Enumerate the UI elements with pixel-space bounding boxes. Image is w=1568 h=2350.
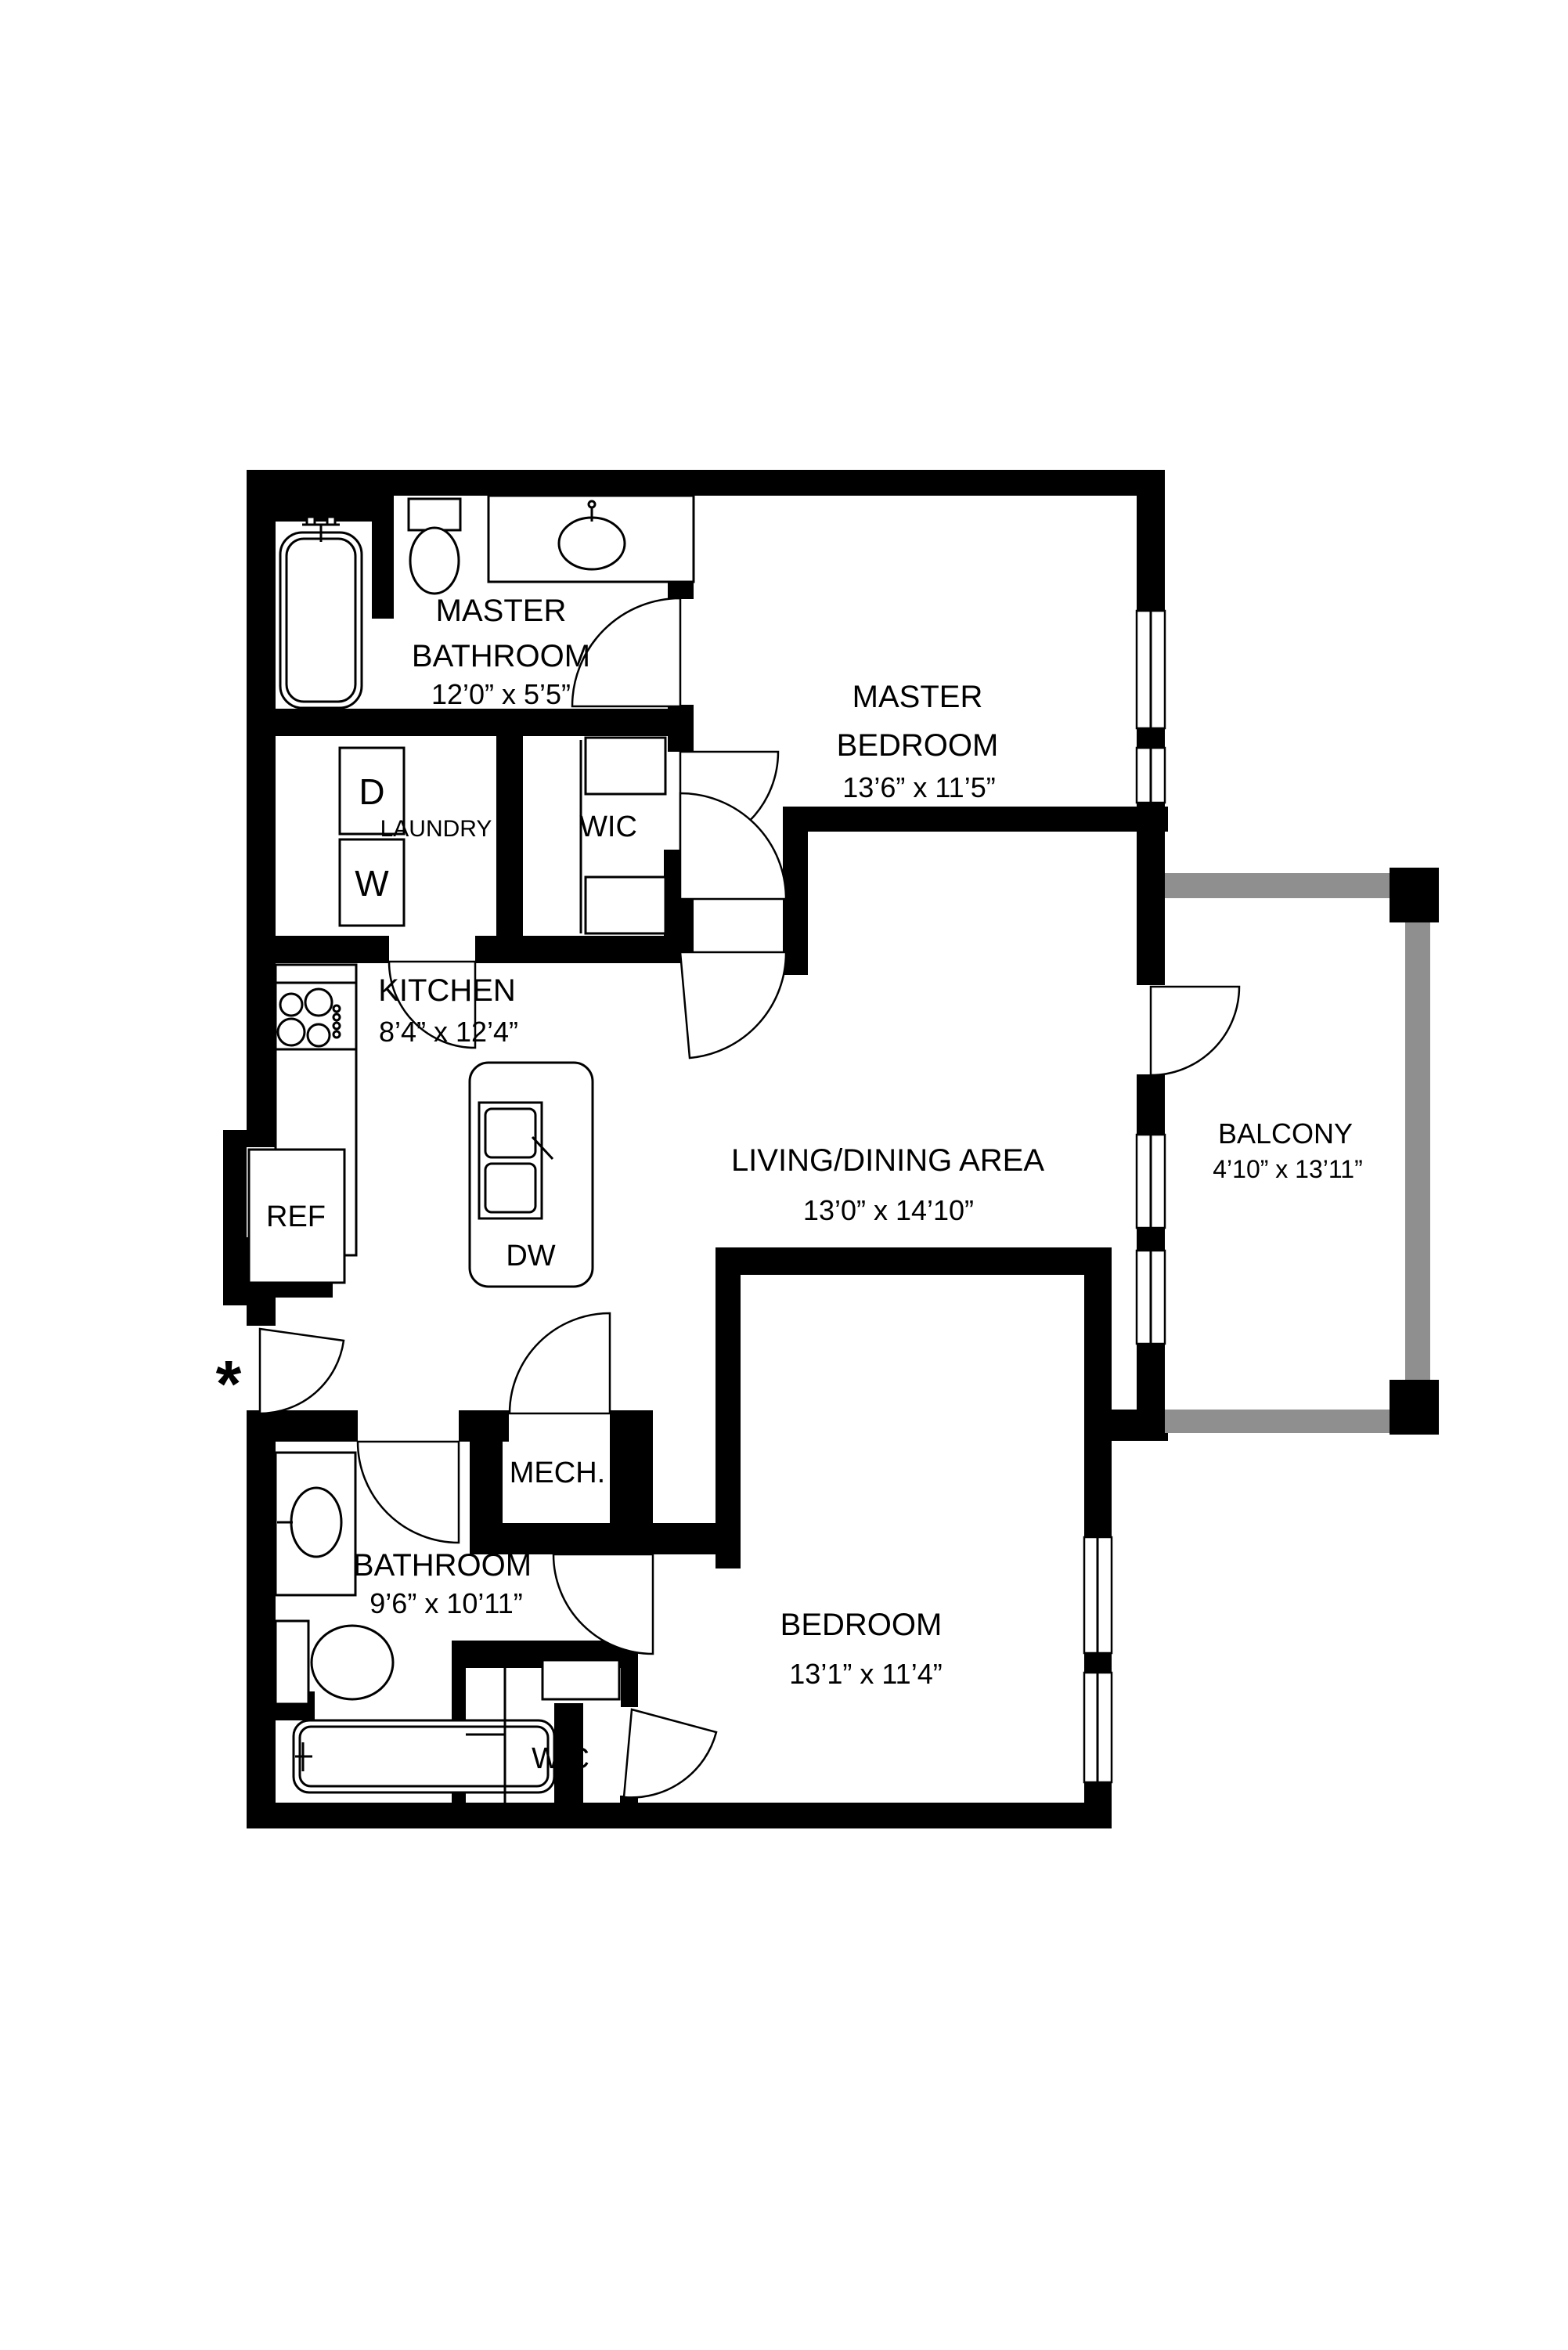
stove-burner-icon	[308, 1024, 330, 1046]
wall-bedroom-right-c	[1084, 1782, 1112, 1828]
closet2-shelf	[542, 1660, 619, 1699]
sink-icon	[559, 518, 625, 569]
closet-shelf-bottom	[586, 877, 665, 933]
wall-masterbed-bottom	[808, 807, 1168, 832]
wall-balcony-connector	[1112, 1410, 1168, 1441]
master-bedroom-label-line1: MASTER	[852, 680, 983, 714]
wall-masterbath-bottom	[247, 709, 694, 736]
balcony-rails	[1165, 868, 1439, 1435]
wall-left-lower	[247, 1412, 276, 1828]
door-master-bedroom	[680, 793, 786, 899]
mech-label: MECH.	[510, 1457, 605, 1489]
wall-wic-bottom	[475, 936, 694, 963]
wall-bedroom-right-a	[1084, 1247, 1112, 1537]
bathroom-dims: 9’6” x 10’11”	[369, 1587, 522, 1619]
bathroom-label: BATHROOM	[353, 1548, 532, 1583]
wall-bedroom-top	[741, 1247, 1112, 1275]
door-bathroom	[358, 1442, 459, 1543]
bathtub-inner	[287, 539, 355, 702]
bathroom-sink-icon	[291, 1488, 341, 1557]
wall-bottom	[247, 1803, 1112, 1828]
stove-knob-icon	[333, 1014, 340, 1020]
wall-bathroom-top-b	[459, 1410, 470, 1442]
balcony-rail-right	[1405, 922, 1430, 1380]
island-sink-basin	[485, 1109, 535, 1157]
wall-right-c	[1137, 803, 1165, 985]
stove-knob-icon	[333, 1005, 340, 1012]
washer-label: W	[355, 863, 389, 904]
balcony-dims: 4’10” x 13’11”	[1213, 1155, 1363, 1183]
bedroom-dims: 13’1” x 11’4”	[789, 1658, 942, 1690]
wall-right-b	[1137, 728, 1165, 748]
bedroom-label: BEDROOM	[780, 1608, 943, 1642]
bedroom-wic-label: WIC	[532, 1742, 589, 1775]
wall-ref-niche-bottom	[223, 1288, 276, 1305]
master-bathroom-label-line1: MASTER	[436, 594, 567, 628]
stove-knob-icon	[333, 1023, 340, 1029]
toilet-bowl-icon	[410, 528, 459, 594]
laundry-label: LAUNDRY	[380, 816, 492, 842]
master-bedroom-label-line2: BEDROOM	[837, 728, 999, 763]
closet-shelf-top	[586, 738, 665, 794]
bathtub-handle-right	[327, 517, 335, 525]
balcony-post-bottomright	[1390, 1380, 1439, 1435]
floor-plan-diagram: MASTER BATHROOM 12’0” x 5’5” MASTER BEDR…	[0, 0, 1568, 2350]
balcony-rail-top	[1165, 873, 1390, 898]
wall-bedroom-right-b	[1084, 1653, 1112, 1673]
door-entry	[260, 1329, 344, 1413]
wall-right-d	[1137, 1074, 1165, 1135]
balcony-post-topright	[1390, 868, 1439, 922]
dryer-label: D	[359, 771, 384, 812]
wall-laundry-right	[496, 736, 523, 936]
wall-laundry-bottom	[247, 936, 389, 963]
island-sink-basin	[485, 1164, 535, 1212]
windows	[1084, 611, 1165, 1782]
door-hall-living	[680, 952, 786, 1058]
master-bedroom-dims: 13’6” x 11’5”	[842, 771, 995, 803]
kitchen-dims: 8’4” x 12’4”	[379, 1016, 518, 1048]
stove-burner-icon	[305, 989, 332, 1016]
stove-knob-icon	[333, 1031, 340, 1038]
kitchen-label: KITCHEN	[378, 973, 516, 1008]
toilet-tank-icon	[409, 499, 460, 530]
stove-burner-icon	[280, 994, 302, 1016]
wall-left-upper	[247, 470, 276, 1146]
refrigerator-label: REF	[266, 1200, 326, 1233]
wall-bedroom-left-jog	[716, 1247, 741, 1568]
wall-mech-top	[470, 1410, 509, 1442]
bathtub2-inner	[300, 1727, 548, 1786]
door-balcony	[1151, 987, 1239, 1075]
door-bedroom-wic	[624, 1709, 716, 1797]
dishwasher-label: DW	[506, 1240, 555, 1272]
wall-right-a	[1137, 496, 1165, 611]
door-bedroom	[553, 1554, 653, 1654]
wall-top	[247, 470, 1165, 496]
toilet2-tank-icon	[276, 1621, 308, 1704]
bathtub-handle-left	[307, 517, 315, 525]
master-bathroom-label-line2: BATHROOM	[412, 639, 590, 673]
balcony-label: BALCONY	[1218, 1117, 1353, 1150]
floor-plan-page: MASTER BATHROOM 12’0” x 5’5” MASTER BEDR…	[0, 0, 1568, 2350]
living-dining-label: LIVING/DINING AREA	[731, 1143, 1044, 1178]
toilet2-bowl-icon	[312, 1626, 393, 1699]
wall-tub-alcove-top	[247, 496, 394, 522]
master-bathroom-dims: 12’0” x 5’5”	[431, 678, 571, 710]
stove-burner-icon	[278, 1019, 305, 1045]
wall-nook-b	[668, 705, 694, 752]
wall-tub-alcove-stub	[372, 496, 394, 619]
door-mech	[510, 1313, 610, 1413]
sink-faucet-dot	[589, 501, 595, 507]
wall-right-e	[1137, 1228, 1165, 1251]
living-dining-dims: 13’0” x 14’10”	[803, 1194, 974, 1226]
entry-asterisk: *	[216, 1347, 242, 1420]
balcony-rail-bottom	[1165, 1410, 1390, 1433]
wall-bathroom-top-a	[247, 1410, 358, 1442]
wall-ref-niche-left	[223, 1130, 247, 1305]
master-wic-label: WIC	[579, 810, 637, 843]
